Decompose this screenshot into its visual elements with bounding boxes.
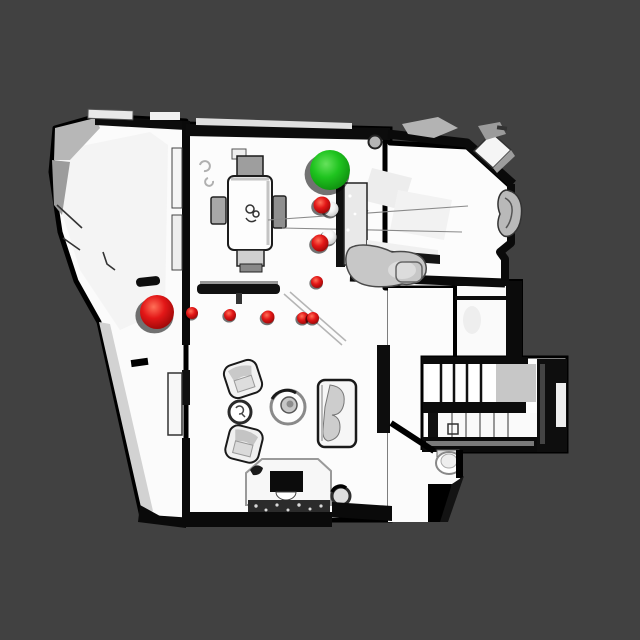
side-table (229, 401, 251, 423)
waypoint-marker-1 (186, 307, 198, 319)
railing (197, 284, 280, 294)
coffee-table-decor-core (287, 401, 294, 408)
waypoint-marker-6 (311, 276, 323, 288)
stair-bottom-strip (426, 441, 534, 446)
dining-chair-top (237, 156, 263, 176)
scan-artifact-2 (478, 122, 506, 140)
stair-mid-rail (423, 402, 526, 413)
scene-canvas[interactable] (0, 0, 640, 640)
start-marker (140, 295, 174, 329)
wall-interior-lower (182, 438, 190, 518)
stair-top-band (422, 357, 528, 364)
fireplace (246, 459, 331, 515)
capped-waypoint-2-red (312, 235, 329, 252)
railing-post (236, 293, 242, 304)
scene-viewport[interactable] (0, 0, 640, 640)
wall-interior-mid (182, 370, 190, 405)
staircase (422, 357, 567, 452)
dining-chair-left (211, 197, 226, 224)
stair-landing (496, 364, 536, 402)
right-room-shade (463, 306, 481, 334)
armchair-bottom (223, 423, 264, 464)
side-chair (498, 190, 522, 236)
stair-lower-edge (428, 413, 438, 437)
right-room-right-wall (506, 281, 522, 358)
roof-slab-2 (150, 112, 180, 120)
dining-chair-right (273, 196, 286, 228)
column (369, 136, 382, 149)
door-leaf-open (168, 373, 182, 435)
goal-marker (310, 150, 350, 190)
toilet-wall-stub (456, 450, 463, 478)
firebox (270, 471, 303, 492)
capped-waypoint-1-red (314, 197, 331, 214)
waypoint-marker-2 (224, 309, 236, 321)
stair-right-slot (556, 383, 566, 427)
toilet-seat (441, 454, 457, 468)
waypoint-marker-5 (307, 312, 319, 324)
stair-right-sliver (540, 364, 545, 444)
roof-slab (88, 109, 133, 120)
living-bottom-wall (182, 512, 332, 527)
dining-chair-bottom-back (240, 264, 262, 272)
hall-wall (377, 345, 390, 433)
stair-upper-flight (428, 364, 496, 402)
door-panel-1 (172, 148, 182, 208)
waypoint-marker-3 (262, 311, 275, 324)
door-panel-2 (172, 215, 182, 270)
bench-highlight (388, 261, 416, 279)
